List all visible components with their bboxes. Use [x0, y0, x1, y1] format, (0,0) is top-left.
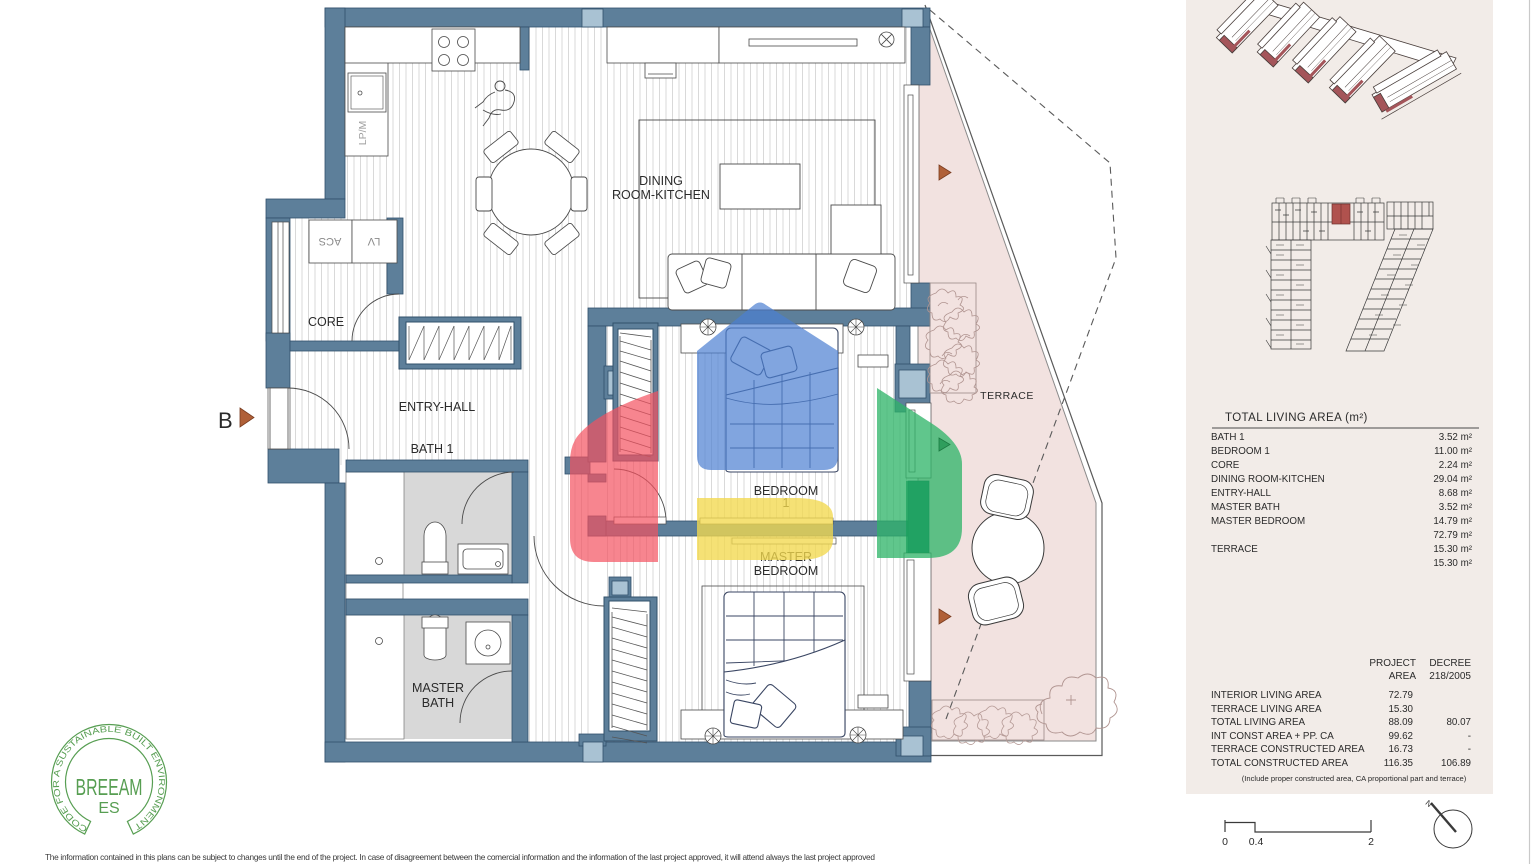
svg-text:MASTER BEDROOM: MASTER BEDROOM — [1211, 516, 1305, 527]
svg-text:8.68 m²: 8.68 m² — [1439, 488, 1473, 499]
svg-text:218/2005: 218/2005 — [1429, 671, 1471, 682]
svg-text:ES: ES — [98, 800, 119, 817]
svg-text:3.52 m²: 3.52 m² — [1439, 432, 1473, 443]
svg-text:(Include proper constructed ar: (Include proper constructed area, CA pro… — [1242, 774, 1467, 783]
svg-text:72.79 m²: 72.79 m² — [1433, 530, 1472, 541]
svg-text:BEDROOM 1: BEDROOM 1 — [1211, 446, 1270, 457]
svg-text:ROOM-KITCHEN: ROOM-KITCHEN — [612, 188, 710, 202]
svg-text:TERRACE CONSTRUCTED AREA: TERRACE CONSTRUCTED AREA — [1211, 744, 1365, 755]
svg-text:ENTRY-HALL: ENTRY-HALL — [399, 400, 475, 414]
svg-text:-: - — [1468, 744, 1471, 755]
svg-text:MASTER BATH: MASTER BATH — [1211, 502, 1280, 513]
svg-text:DINING: DINING — [639, 174, 683, 188]
svg-text:The information contained in t: The information contained in this plans … — [45, 852, 875, 862]
svg-text:AREA: AREA — [1389, 671, 1417, 682]
svg-text:BATH 1: BATH 1 — [1211, 432, 1245, 443]
svg-text:11.00 m²: 11.00 m² — [1434, 446, 1473, 457]
svg-text:BREEAM: BREEAM — [76, 774, 143, 800]
svg-text:0.4: 0.4 — [1249, 836, 1264, 848]
svg-text:14.79 m²: 14.79 m² — [1433, 516, 1472, 527]
svg-text:BATH 1: BATH 1 — [411, 442, 454, 456]
svg-text:88.09: 88.09 — [1388, 717, 1413, 728]
svg-text:2.24 m²: 2.24 m² — [1439, 460, 1473, 471]
svg-text:B: B — [218, 408, 233, 433]
svg-text:PROJECT: PROJECT — [1369, 658, 1416, 669]
svg-text:CORE: CORE — [1211, 460, 1240, 471]
svg-text:TOTAL LIVING AREA (m²): TOTAL LIVING AREA (m²) — [1225, 412, 1368, 424]
svg-text:TOTAL LIVING AREA: TOTAL LIVING AREA — [1211, 717, 1305, 728]
svg-text:15.30 m²: 15.30 m² — [1433, 558, 1472, 569]
svg-text:99.62: 99.62 — [1388, 731, 1413, 742]
svg-text:15.30: 15.30 — [1388, 704, 1413, 715]
svg-text:TERRACE: TERRACE — [1211, 544, 1258, 555]
svg-text:16.73: 16.73 — [1388, 744, 1413, 755]
svg-text:72.79: 72.79 — [1388, 690, 1413, 701]
svg-text:LP/M: LP/M — [357, 121, 369, 146]
svg-text:3.52 m²: 3.52 m² — [1439, 502, 1473, 513]
svg-text:INT CONST AREA + PP. CA: INT CONST AREA + PP. CA — [1211, 731, 1334, 742]
svg-text:BEDROOM: BEDROOM — [754, 564, 819, 578]
svg-text:TOTAL CONSTRUCTED AREA: TOTAL CONSTRUCTED AREA — [1211, 758, 1348, 769]
svg-text:LV: LV — [367, 235, 380, 247]
svg-text:29.04 m²: 29.04 m² — [1433, 474, 1472, 485]
svg-text:ACS: ACS — [319, 235, 342, 247]
svg-text:MASTER: MASTER — [412, 681, 464, 695]
svg-text:INTERIOR LIVING AREA: INTERIOR LIVING AREA — [1211, 690, 1322, 701]
svg-text:0: 0 — [1222, 836, 1228, 848]
svg-text:TERRACE: TERRACE — [980, 390, 1034, 402]
svg-text:ENTRY-HALL: ENTRY-HALL — [1211, 488, 1271, 499]
svg-text:DECREE: DECREE — [1429, 658, 1471, 669]
svg-text:BATH: BATH — [422, 696, 454, 710]
svg-text:CORE: CORE — [308, 315, 344, 329]
svg-text:15.30 m²: 15.30 m² — [1433, 544, 1472, 555]
svg-text:DINING ROOM-KITCHEN: DINING ROOM-KITCHEN — [1211, 474, 1325, 485]
svg-text:-: - — [1468, 731, 1471, 742]
svg-text:116.35: 116.35 — [1384, 758, 1414, 769]
svg-text:80.07: 80.07 — [1446, 717, 1471, 728]
svg-text:2: 2 — [1368, 836, 1374, 848]
svg-text:TERRACE LIVING AREA: TERRACE LIVING AREA — [1211, 704, 1322, 715]
svg-text:106.89: 106.89 — [1441, 758, 1471, 769]
